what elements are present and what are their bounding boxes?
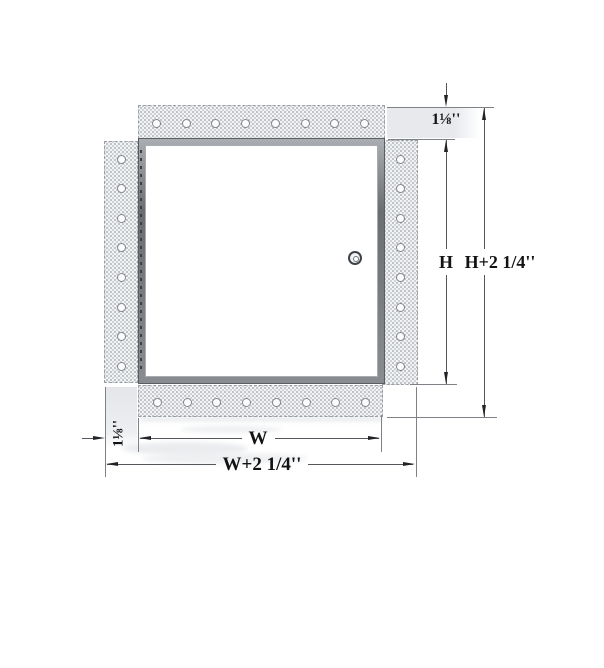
ext-line-right-of-flange bbox=[416, 387, 417, 477]
arrowhead-height-overall-bottom bbox=[482, 405, 486, 417]
flange-hole bbox=[153, 398, 162, 407]
flange-hole bbox=[117, 243, 126, 252]
flange-hole bbox=[117, 155, 126, 164]
flange-hole bbox=[360, 119, 369, 128]
arrowhead-width-left bbox=[139, 436, 151, 440]
flange-hole bbox=[396, 214, 405, 223]
flange-hole bbox=[182, 119, 191, 128]
cam-latch-center-icon bbox=[353, 256, 359, 262]
ext-line-right-of-opening bbox=[381, 415, 382, 452]
flange-hole bbox=[361, 398, 370, 407]
flange-hole bbox=[396, 332, 405, 341]
flange-hole bbox=[212, 398, 221, 407]
flange-hole bbox=[331, 398, 340, 407]
flange-hole bbox=[396, 362, 405, 371]
flange-top bbox=[138, 105, 385, 139]
arrowhead-height-top bbox=[444, 140, 448, 152]
label-height: H bbox=[434, 253, 458, 271]
cam-latch-icon bbox=[348, 251, 362, 265]
label-width-overall: W+2 1/4'' bbox=[209, 455, 315, 474]
dim-line-height-overall-upper bbox=[484, 108, 485, 249]
ext-line-left-of-opening bbox=[138, 418, 139, 452]
flange-hole bbox=[272, 398, 281, 407]
flange-hole bbox=[117, 362, 126, 371]
flange-hole bbox=[117, 214, 126, 223]
shadow-under-bottom-flange bbox=[140, 417, 383, 424]
flange-hole bbox=[117, 332, 126, 341]
flange-hole bbox=[242, 398, 251, 407]
flange-hole bbox=[117, 273, 126, 282]
arrowhead-height-overall-top bbox=[482, 108, 486, 120]
label-height-overall: H+2 1/4'' bbox=[459, 253, 541, 271]
dim-line-height-overall-lower bbox=[484, 275, 485, 417]
flange-hole bbox=[396, 273, 405, 282]
dim-line-width-left bbox=[140, 438, 242, 439]
hinge-edge-icon bbox=[140, 150, 142, 372]
flange-hole bbox=[241, 119, 250, 128]
dim-line-height-lower bbox=[446, 275, 447, 384]
flange-hole bbox=[183, 398, 192, 407]
flange-hole bbox=[396, 243, 405, 252]
dim-line-width-right bbox=[275, 438, 379, 439]
flange-left bbox=[104, 141, 138, 383]
arrowhead-width-overall-left bbox=[106, 462, 118, 466]
label-left-offset: 1⅛'' bbox=[112, 408, 127, 460]
flange-hole bbox=[152, 119, 161, 128]
flange-hole bbox=[396, 303, 405, 312]
flange-hole bbox=[396, 184, 405, 193]
arrowhead-height-bottom bbox=[444, 372, 448, 384]
flange-hole bbox=[117, 303, 126, 312]
flange-hole bbox=[117, 184, 126, 193]
label-width: W bbox=[240, 429, 276, 448]
arrowhead-top-offset bbox=[444, 95, 448, 107]
flange-hole bbox=[396, 155, 405, 164]
arrowhead-width-right bbox=[368, 436, 380, 440]
flange-bottom bbox=[138, 385, 383, 417]
ext-line-top-of-flange bbox=[387, 107, 494, 108]
dim-line-width-overall-right bbox=[308, 464, 413, 465]
ext-line-bottom-of-flange bbox=[387, 417, 497, 418]
access-door-diagram: 1⅛'' H H+2 1/4'' W W+2 1/4'' 1⅛'' bbox=[0, 0, 604, 668]
flange-hole bbox=[211, 119, 220, 128]
dim-line-height-upper bbox=[446, 140, 447, 249]
dim-line-width-overall-left bbox=[107, 464, 216, 465]
flange-hole bbox=[271, 119, 280, 128]
flange-hole bbox=[330, 119, 339, 128]
flange-hole bbox=[302, 398, 311, 407]
label-top-offset: 1⅛'' bbox=[420, 112, 472, 128]
flange-right bbox=[382, 140, 418, 385]
door-panel bbox=[145, 145, 378, 377]
arrowhead-width-overall-right bbox=[403, 462, 415, 466]
ext-line-bottom-of-opening bbox=[410, 384, 457, 385]
arrowhead-left-offset bbox=[93, 436, 105, 440]
flange-hole bbox=[301, 119, 310, 128]
